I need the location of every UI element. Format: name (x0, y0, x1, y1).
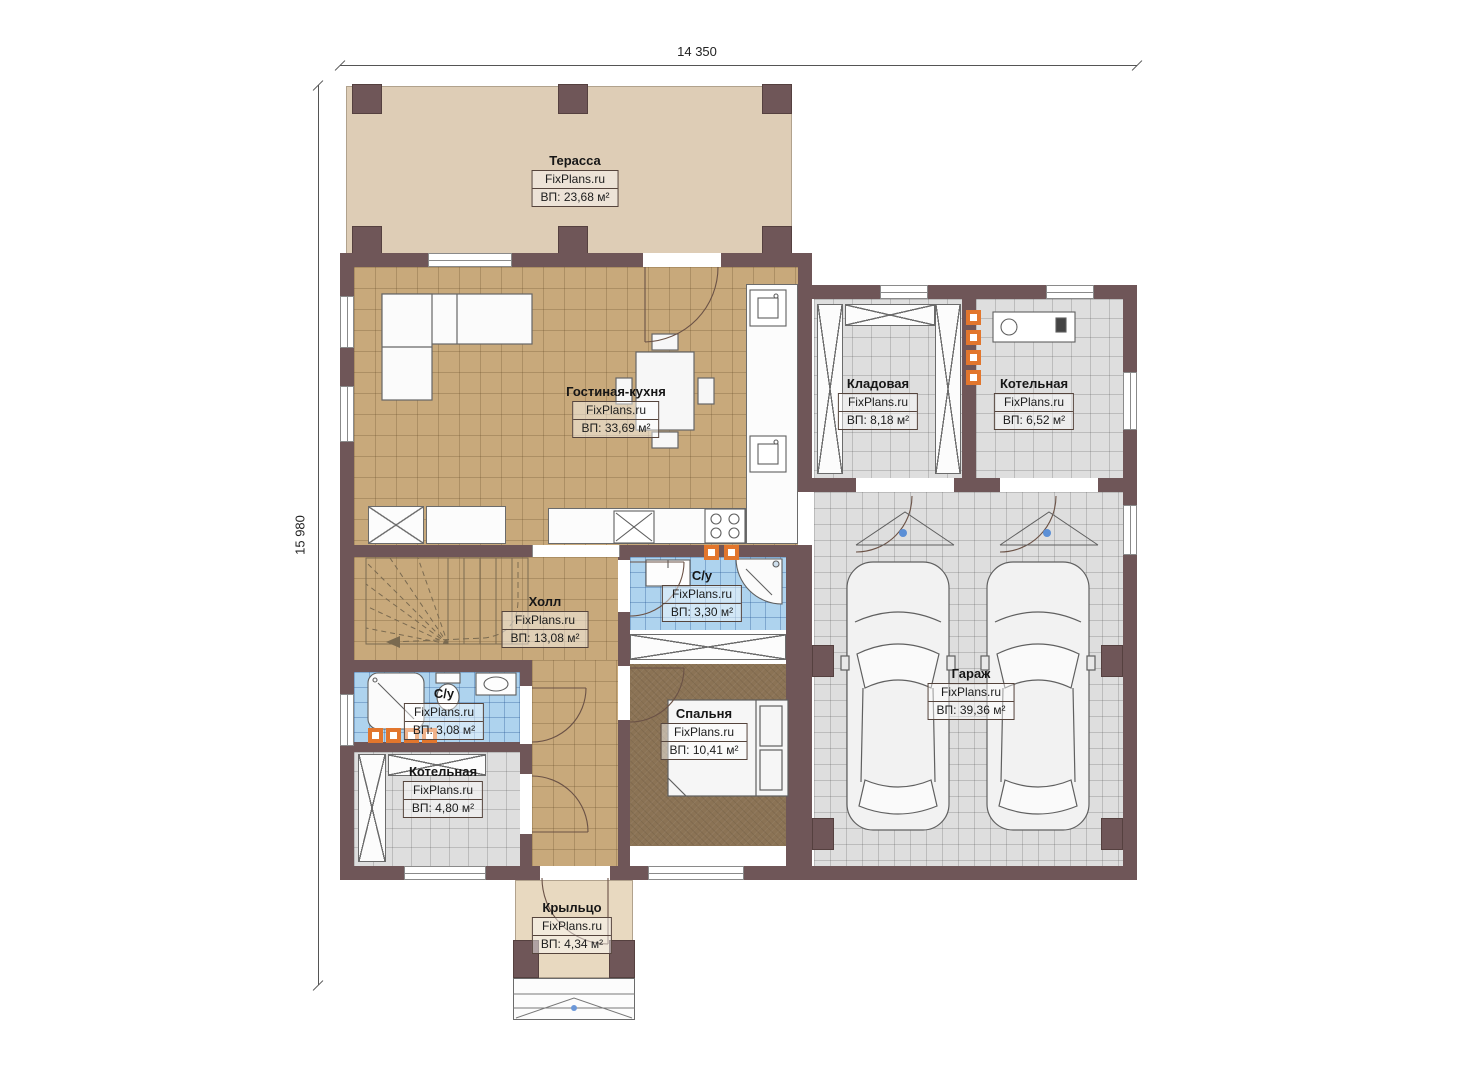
window (404, 866, 486, 880)
garage-pilaster (812, 818, 834, 850)
room-name: Спальня (661, 706, 748, 721)
door-opening (643, 253, 721, 267)
room-area: ВП: 23,68 м² (533, 188, 618, 206)
wall (348, 660, 530, 672)
room-area: ВП: 39,36 м² (929, 701, 1014, 719)
terrace-column (762, 226, 792, 256)
boiler-bottom-shelf-left (358, 754, 386, 862)
window (1123, 505, 1137, 555)
room-area: ВП: 6,52 м² (995, 411, 1073, 429)
wall (786, 545, 812, 880)
garage-pilaster (812, 645, 834, 677)
room-info-box: FixPlans.ru ВП: 6,52 м² (994, 393, 1074, 430)
room-label-garage: Гараж FixPlans.ru ВП: 39,36 м² (928, 666, 1015, 720)
room-info-box: FixPlans.ru ВП: 3,30 м² (662, 585, 742, 622)
room-name: Котельная (994, 376, 1074, 391)
garage-pilaster (1101, 645, 1123, 677)
brand-watermark: FixPlans.ru (533, 171, 618, 188)
room-name: Котельная (403, 764, 483, 779)
room-info-box: FixPlans.ru ВП: 39,36 м² (928, 683, 1015, 720)
room-label-terrace: Терасса FixPlans.ru ВП: 23,68 м² (532, 153, 619, 207)
room-area: ВП: 10,41 м² (662, 741, 747, 759)
radiator (966, 330, 981, 345)
brand-watermark: FixPlans.ru (663, 586, 741, 603)
window (340, 694, 354, 746)
radiator (966, 370, 981, 385)
dimension-line-left (318, 85, 319, 985)
room-label-bedroom: Спальня FixPlans.ru ВП: 10,41 м² (661, 706, 748, 760)
room-area: ВП: 4,34 м² (533, 935, 611, 953)
brand-watermark: FixPlans.ru (662, 724, 747, 741)
brand-watermark: FixPlans.ru (574, 402, 659, 419)
terrace-column (558, 84, 588, 114)
room-info-box: FixPlans.ru ВП: 4,34 м² (532, 917, 612, 954)
room-name: Холл (502, 594, 589, 609)
wall (340, 253, 812, 267)
room-label-hall: Холл FixPlans.ru ВП: 13,08 м² (502, 594, 589, 648)
room-info-box: FixPlans.ru ВП: 4,80 м² (403, 781, 483, 818)
room-area: ВП: 13,08 м² (503, 629, 588, 647)
room-name: Терасса (532, 153, 619, 168)
window (340, 386, 354, 442)
room-area: ВП: 8,18 м² (839, 411, 917, 429)
room-label-storage: Кладовая FixPlans.ru ВП: 8,18 м² (838, 376, 918, 430)
brand-watermark: FixPlans.ru (503, 612, 588, 629)
room-label-living-kitchen: Гостиная-кухня FixPlans.ru ВП: 33,69 м² (566, 384, 666, 438)
brand-watermark: FixPlans.ru (929, 684, 1014, 701)
radiator (966, 310, 981, 325)
room-label-porch: Крыльцо FixPlans.ru ВП: 4,34 м² (532, 900, 612, 954)
room-label-bath-main: С/у FixPlans.ru ВП: 3,30 м² (662, 568, 742, 622)
window (340, 296, 354, 348)
room-info-box: FixPlans.ru ВП: 3,08 м² (404, 703, 484, 740)
kitchen-counter-right (746, 284, 798, 544)
room-info-box: FixPlans.ru ВП: 23,68 м² (532, 170, 619, 207)
hall-corridor-floor (532, 660, 618, 866)
radiator (368, 728, 383, 743)
porch-column (609, 940, 635, 978)
brand-watermark: FixPlans.ru (404, 782, 482, 799)
terrace-column (352, 226, 382, 256)
terrace-column (762, 84, 792, 114)
brand-watermark: FixPlans.ru (533, 918, 611, 935)
wide-opening (532, 545, 620, 557)
floor-plan: 14 350 15 980 (0, 0, 1474, 1080)
wall (798, 253, 812, 492)
radiator (724, 545, 739, 560)
room-name: Гараж (928, 666, 1015, 681)
window (648, 866, 744, 880)
room-label-boiler-top: Котельная FixPlans.ru ВП: 6,52 м² (994, 376, 1074, 430)
door-opening (618, 666, 630, 720)
room-area: ВП: 3,30 м² (663, 603, 741, 621)
window (1046, 285, 1094, 299)
room-name: Кладовая (838, 376, 918, 391)
terrace-column (558, 226, 588, 256)
room-name: С/у (662, 568, 742, 583)
kitchen-counter-bottom (548, 508, 746, 544)
dimension-width-label: 14 350 (673, 44, 721, 59)
sideboard (368, 506, 424, 544)
dimension-line-top (340, 65, 1137, 66)
tv-stand (426, 506, 506, 544)
room-area: ВП: 33,69 м² (574, 419, 659, 437)
wall (348, 742, 530, 752)
storage-shelf-right (935, 304, 961, 474)
wardrobe (630, 634, 786, 660)
dimension-height-label: 15 980 (293, 511, 308, 559)
door-opening (520, 774, 532, 834)
brand-watermark: FixPlans.ru (839, 394, 917, 411)
garage-pilaster (1101, 818, 1123, 850)
wall (962, 299, 976, 478)
room-info-box: FixPlans.ru ВП: 33,69 м² (573, 401, 660, 438)
radiator (704, 545, 719, 560)
room-name: Гостиная-кухня (566, 384, 666, 399)
entry-door-opening (540, 866, 610, 880)
room-name: Крыльцо (532, 900, 612, 915)
porch-steps (513, 978, 635, 1020)
room-info-box: FixPlans.ru ВП: 8,18 м² (838, 393, 918, 430)
door-opening (520, 686, 532, 744)
window (880, 285, 928, 299)
room-area: ВП: 4,80 м² (404, 799, 482, 817)
window (428, 253, 512, 267)
door-opening (618, 560, 630, 612)
room-label-boiler-bottom: Котельная FixPlans.ru ВП: 4,80 м² (403, 764, 483, 818)
room-area: ВП: 3,08 м² (405, 721, 483, 739)
door-opening (856, 478, 954, 492)
window (1123, 372, 1137, 430)
door-opening (1000, 478, 1098, 492)
room-name: С/у (404, 686, 484, 701)
room-info-box: FixPlans.ru ВП: 10,41 м² (661, 723, 748, 760)
room-info-box: FixPlans.ru ВП: 13,08 м² (502, 611, 589, 648)
radiator (386, 728, 401, 743)
terrace-column (352, 84, 382, 114)
radiator (966, 350, 981, 365)
room-label-bath-small: С/у FixPlans.ru ВП: 3,08 м² (404, 686, 484, 740)
storage-shelf-top (845, 304, 935, 326)
brand-watermark: FixPlans.ru (405, 704, 483, 721)
brand-watermark: FixPlans.ru (995, 394, 1073, 411)
